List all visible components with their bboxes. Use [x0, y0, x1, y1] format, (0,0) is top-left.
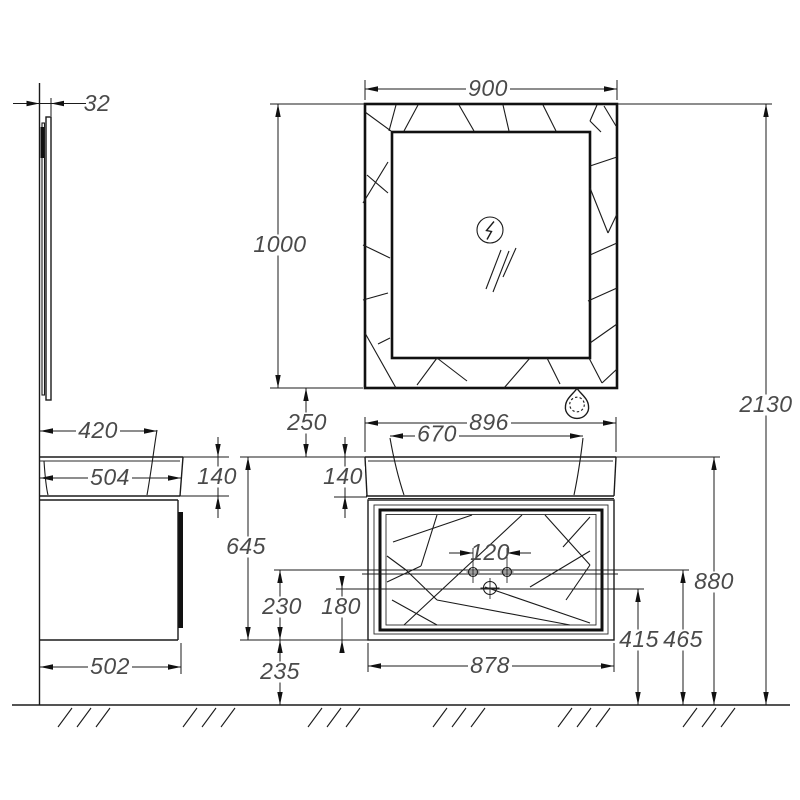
dim-mirror-height: 1000	[251, 104, 309, 388]
dim-label: 120	[470, 539, 510, 565]
dim-label: 645	[226, 533, 266, 559]
mirror-back-plate	[42, 123, 45, 395]
dim-label: 140	[323, 463, 363, 489]
dim-label: 878	[470, 652, 510, 678]
dim-label: 504	[90, 464, 130, 490]
dim-label: 180	[321, 593, 361, 619]
cabinet-door-side	[179, 512, 184, 628]
dim-label: 670	[417, 421, 457, 447]
dim-mirror-depth: 32	[13, 90, 110, 116]
mirror-glass-side	[46, 117, 51, 400]
dim-counter-height: 880	[692, 457, 736, 705]
dim-label: 235	[259, 658, 300, 684]
power-icon	[477, 217, 503, 243]
dim-counter-depth: 504	[40, 464, 181, 490]
drop-ornament-icon	[565, 389, 588, 419]
cabinet-side-view	[40, 430, 183, 640]
cabinet-box-side	[40, 500, 178, 640]
mirror-frame-inner	[392, 132, 590, 358]
dim-counter-thickness-front: 140	[321, 437, 367, 518]
floor-line	[12, 705, 790, 727]
dimensions: 32 900 1000 2130	[13, 75, 795, 705]
dim-mirror-width: 900	[365, 75, 617, 101]
dim-counter-width: 896	[365, 409, 616, 452]
dim-mirror-gap: 250	[285, 388, 329, 457]
vanity-technical-drawing: 32 900 1000 2130	[0, 0, 800, 800]
dim-label: 420	[78, 417, 118, 443]
dim-cabinet-width: 878	[368, 643, 614, 678]
dim-label: 140	[197, 463, 237, 489]
dim-label: 230	[261, 593, 302, 619]
dim-bottom-clearance: 235	[258, 640, 302, 705]
basin-outline-right	[574, 438, 583, 495]
dim-label: 465	[663, 626, 703, 652]
dim-total-height: 2130	[737, 104, 795, 705]
dim-outlet-upper-offset: 230	[260, 570, 304, 640]
dim-counter-thickness-side: 140	[180, 437, 239, 518]
basin-profile-right	[147, 430, 157, 495]
dim-label: 32	[84, 90, 111, 116]
dim-label: 250	[286, 409, 327, 435]
dim-outlet-lower-offset: 180	[319, 576, 363, 653]
floor-hatching	[58, 708, 735, 727]
dim-label: 900	[468, 75, 508, 101]
dim-label: 415	[619, 626, 659, 652]
mirror-frame-mosaic-pattern	[363, 105, 617, 388]
mirror-front-view	[363, 104, 617, 418]
mirror-glare-icon	[486, 248, 516, 292]
dim-faucet-spacing: 120	[449, 539, 531, 565]
dim-label: 502	[90, 653, 130, 679]
mirror-side-view	[40, 83, 52, 705]
mirror-mount-bracket	[41, 127, 44, 158]
dim-label: 896	[469, 409, 509, 435]
dim-label: 1000	[253, 231, 306, 257]
basin-outline-left	[390, 438, 404, 495]
dim-label: 2130	[738, 391, 792, 417]
dim-outlet-lower-height: 415	[617, 589, 661, 705]
dim-label: 880	[694, 568, 734, 594]
mirror-frame-outer	[365, 104, 617, 388]
dim-cabinet-depth: 502	[40, 643, 181, 679]
dim-basin-depth: 420	[40, 417, 157, 443]
